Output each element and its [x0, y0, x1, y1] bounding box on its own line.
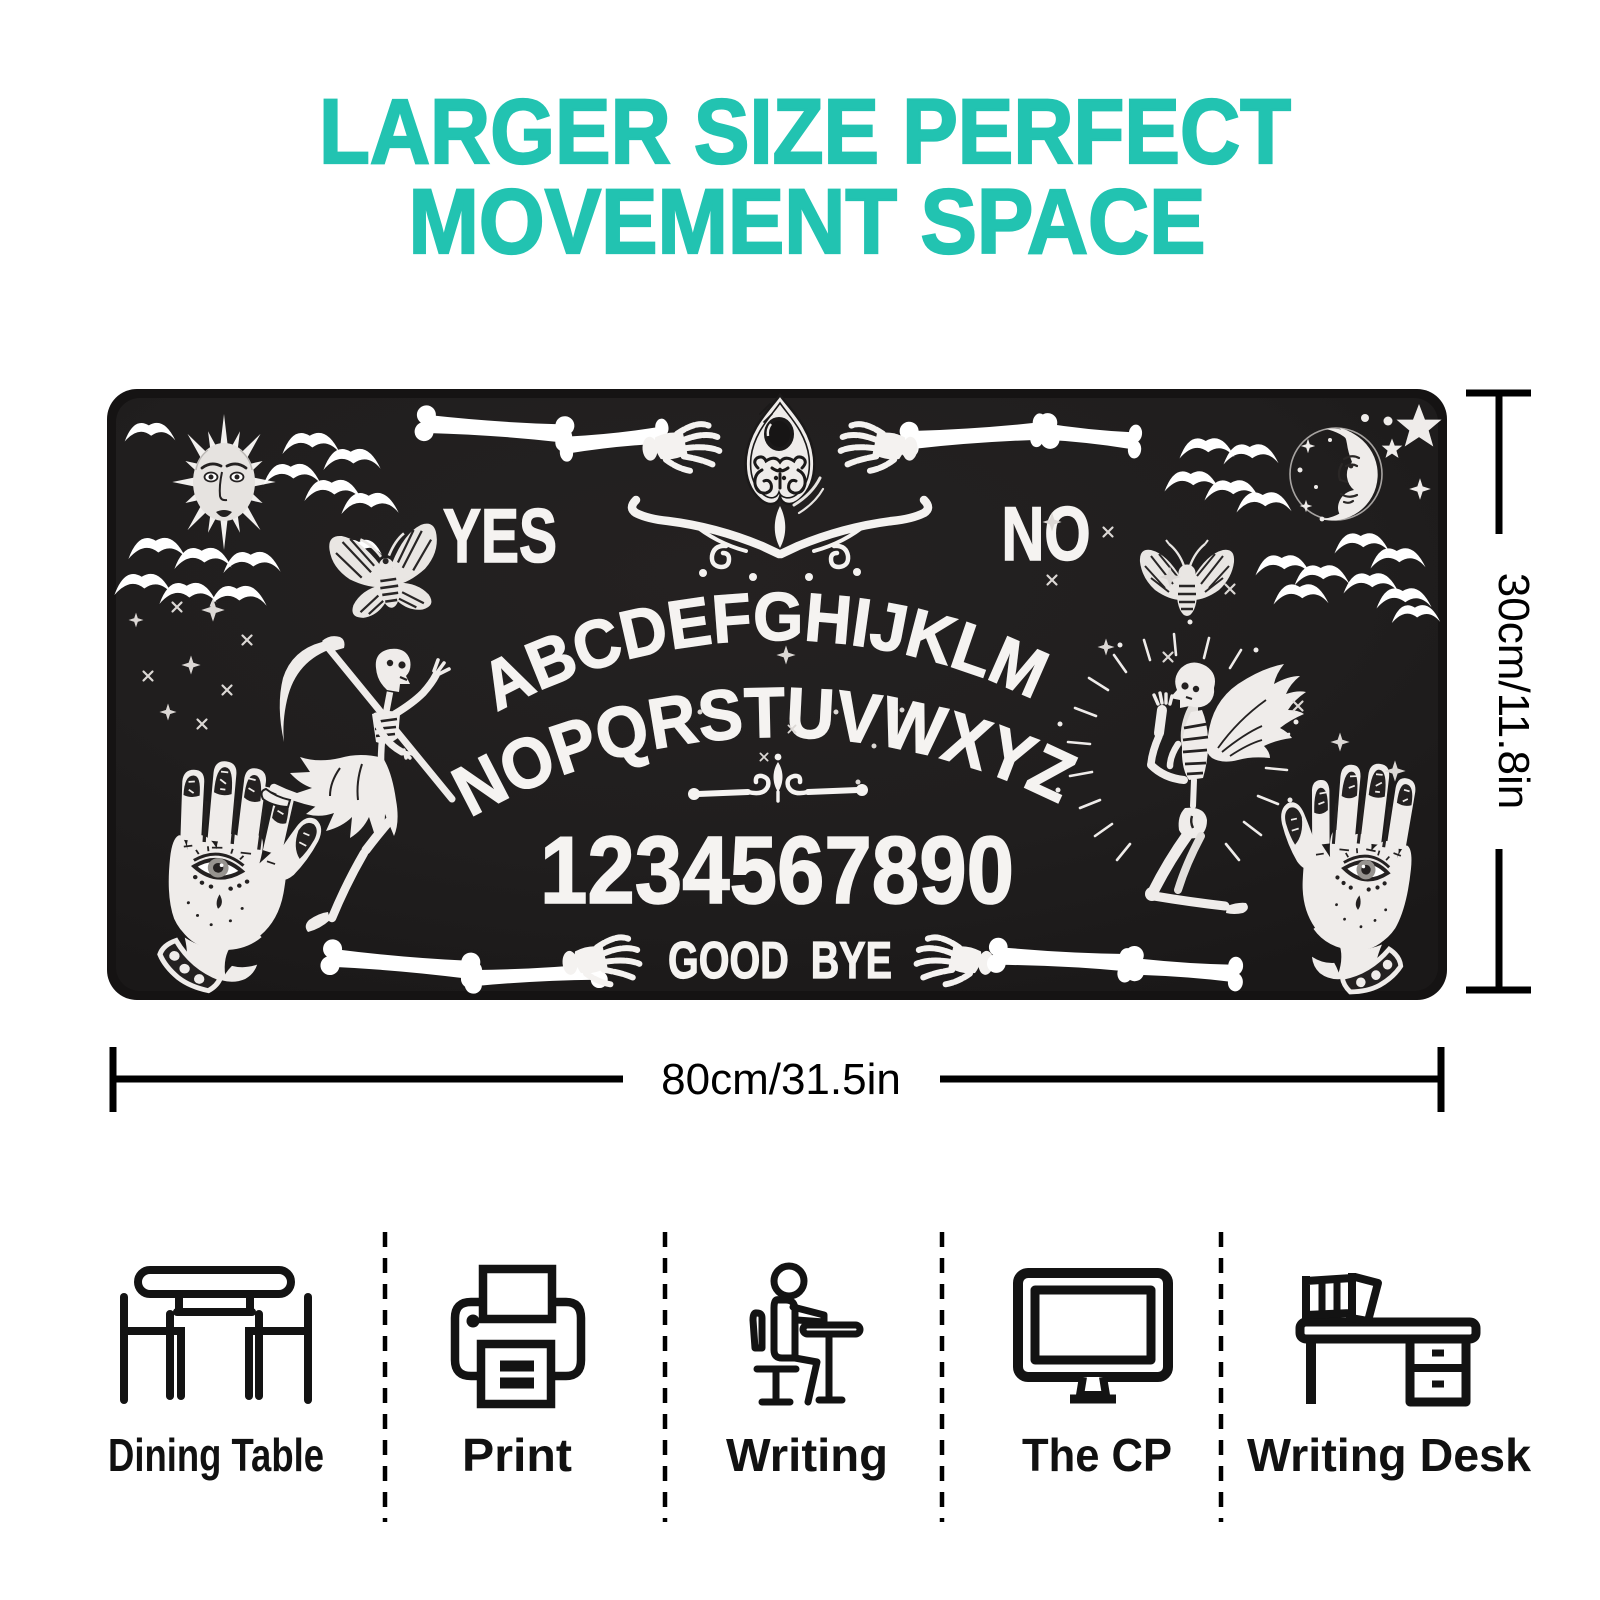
svg-text:MOVEMENT SPACE: MOVEMENT SPACE [409, 171, 1206, 273]
svg-text:80cm/31.5in: 80cm/31.5in [661, 1055, 901, 1104]
svg-text:Writing Desk: Writing Desk [1247, 1429, 1531, 1481]
svg-text:1234567890: 1234567890 [540, 817, 1014, 924]
svg-text:Writing: Writing [726, 1429, 888, 1481]
svg-text:Dining Table: Dining Table [108, 1429, 324, 1481]
svg-text:30cm/11.8in: 30cm/11.8in [1489, 573, 1538, 809]
svg-text:LARGER SIZE PERFECT: LARGER SIZE PERFECT [319, 81, 1291, 183]
svg-text:GOOD BYE: GOOD BYE [668, 932, 892, 990]
svg-text:Print: Print [462, 1429, 572, 1481]
svg-text:NO: NO [1002, 492, 1091, 577]
svg-text:YES: YES [443, 494, 557, 579]
svg-text:The CP: The CP [1022, 1429, 1172, 1481]
